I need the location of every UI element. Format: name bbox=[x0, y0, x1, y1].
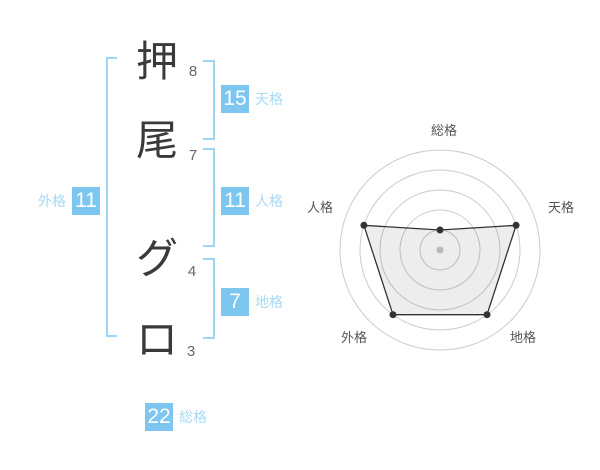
radar-axis-label-tenkaku: 天格 bbox=[548, 200, 574, 215]
stroke-count-1: 8 bbox=[186, 64, 200, 79]
name-char-1: 押 bbox=[134, 41, 180, 83]
radar-polygon-group bbox=[364, 225, 516, 314]
name-char-3: グ bbox=[134, 238, 180, 280]
stroke-count-2: 7 bbox=[186, 148, 200, 163]
gaikaku-label: 外格 bbox=[30, 194, 66, 208]
tenkaku-bracket bbox=[203, 60, 215, 140]
name-analysis-panel: 押 尾 グ ロ 8 7 4 3 15 11 7 11 22 天格 人格 地格 外… bbox=[0, 0, 600, 470]
chikaku-badge: 7 bbox=[221, 288, 249, 316]
tenkaku-label: 天格 bbox=[255, 92, 283, 106]
soukaku-badge: 22 bbox=[145, 403, 173, 431]
radar-axis-label-chikaku: 地格 bbox=[510, 330, 536, 345]
chikaku-bracket bbox=[203, 258, 215, 339]
radar-center-dot bbox=[437, 247, 444, 254]
radar-axis-label-soukaku: 総格 bbox=[431, 123, 457, 138]
stroke-count-4: 3 bbox=[184, 344, 198, 359]
stroke-count-3: 4 bbox=[185, 264, 199, 279]
gaikaku-badge: 11 bbox=[72, 187, 100, 215]
radar-axis-label-jinkaku: 人格 bbox=[307, 200, 333, 215]
jinkaku-bracket bbox=[203, 148, 215, 247]
radar-axis-label-gaikaku: 外格 bbox=[341, 330, 367, 345]
jinkaku-badge: 11 bbox=[221, 187, 249, 215]
name-char-4: ロ bbox=[134, 319, 180, 361]
radar-chart: 総格 天格 地格 外格 人格 bbox=[300, 105, 600, 380]
chikaku-label: 地格 bbox=[255, 295, 283, 309]
name-char-2: 尾 bbox=[134, 120, 180, 162]
gaikaku-bracket bbox=[106, 57, 117, 337]
tenkaku-badge: 15 bbox=[221, 85, 249, 113]
jinkaku-label: 人格 bbox=[255, 194, 283, 208]
soukaku-label: 総格 bbox=[179, 410, 207, 424]
